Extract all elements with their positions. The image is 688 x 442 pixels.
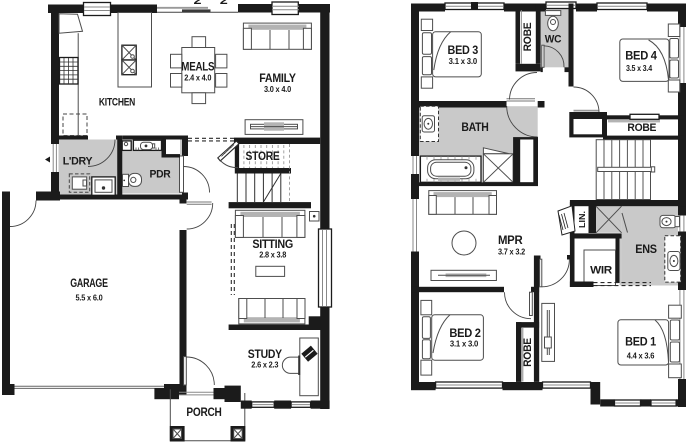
svg-text:L'DRY: L'DRY	[63, 156, 94, 168]
svg-text:SITTING: SITTING	[252, 237, 293, 251]
svg-text:MEALS: MEALS	[181, 60, 214, 74]
svg-text:BED 4: BED 4	[625, 49, 657, 63]
svg-text:ROBE: ROBE	[522, 338, 534, 367]
svg-text:2.4 x 4.0: 2.4 x 4.0	[184, 74, 212, 83]
svg-text:WIR: WIR	[590, 265, 612, 277]
svg-text:2: 2	[194, 0, 202, 7]
svg-text:2.8 x 3.8: 2.8 x 3.8	[259, 250, 287, 259]
svg-text:ENS: ENS	[635, 242, 657, 256]
svg-text:WC: WC	[545, 34, 562, 46]
svg-text:3.1 x 3.0: 3.1 x 3.0	[450, 340, 479, 349]
svg-text:4.4 x 3.6: 4.4 x 3.6	[627, 351, 655, 360]
svg-text:KITCHEN: KITCHEN	[99, 97, 135, 109]
svg-text:MPR: MPR	[498, 233, 523, 247]
svg-text:3.0 x 4.0: 3.0 x 4.0	[264, 85, 292, 94]
svg-text:BED 3: BED 3	[448, 43, 479, 57]
svg-text:PORCH: PORCH	[186, 405, 221, 419]
svg-text:ROBE: ROBE	[627, 122, 656, 134]
svg-text:BED 1: BED 1	[625, 335, 656, 349]
svg-text:3.5 x 3.4: 3.5 x 3.4	[626, 64, 653, 73]
svg-text:2.6 x 2.3: 2.6 x 2.3	[251, 360, 279, 369]
svg-text:3.7 x 3.2: 3.7 x 3.2	[498, 248, 526, 257]
svg-text:STORE: STORE	[246, 149, 280, 163]
svg-text:FAMILY: FAMILY	[259, 71, 296, 85]
svg-text:GARAGE: GARAGE	[70, 276, 108, 290]
svg-text:3.1 x 3.0: 3.1 x 3.0	[449, 57, 478, 66]
svg-text:2: 2	[220, 0, 228, 7]
svg-text:5.5 x 6.0: 5.5 x 6.0	[76, 294, 104, 303]
svg-text:BATH: BATH	[461, 120, 488, 134]
svg-text:BED 2: BED 2	[449, 326, 481, 340]
svg-text:LIN.: LIN.	[578, 211, 587, 228]
svg-text:PDR: PDR	[150, 169, 171, 181]
svg-text:ROBE: ROBE	[522, 23, 534, 52]
svg-text:STUDY: STUDY	[248, 347, 282, 361]
